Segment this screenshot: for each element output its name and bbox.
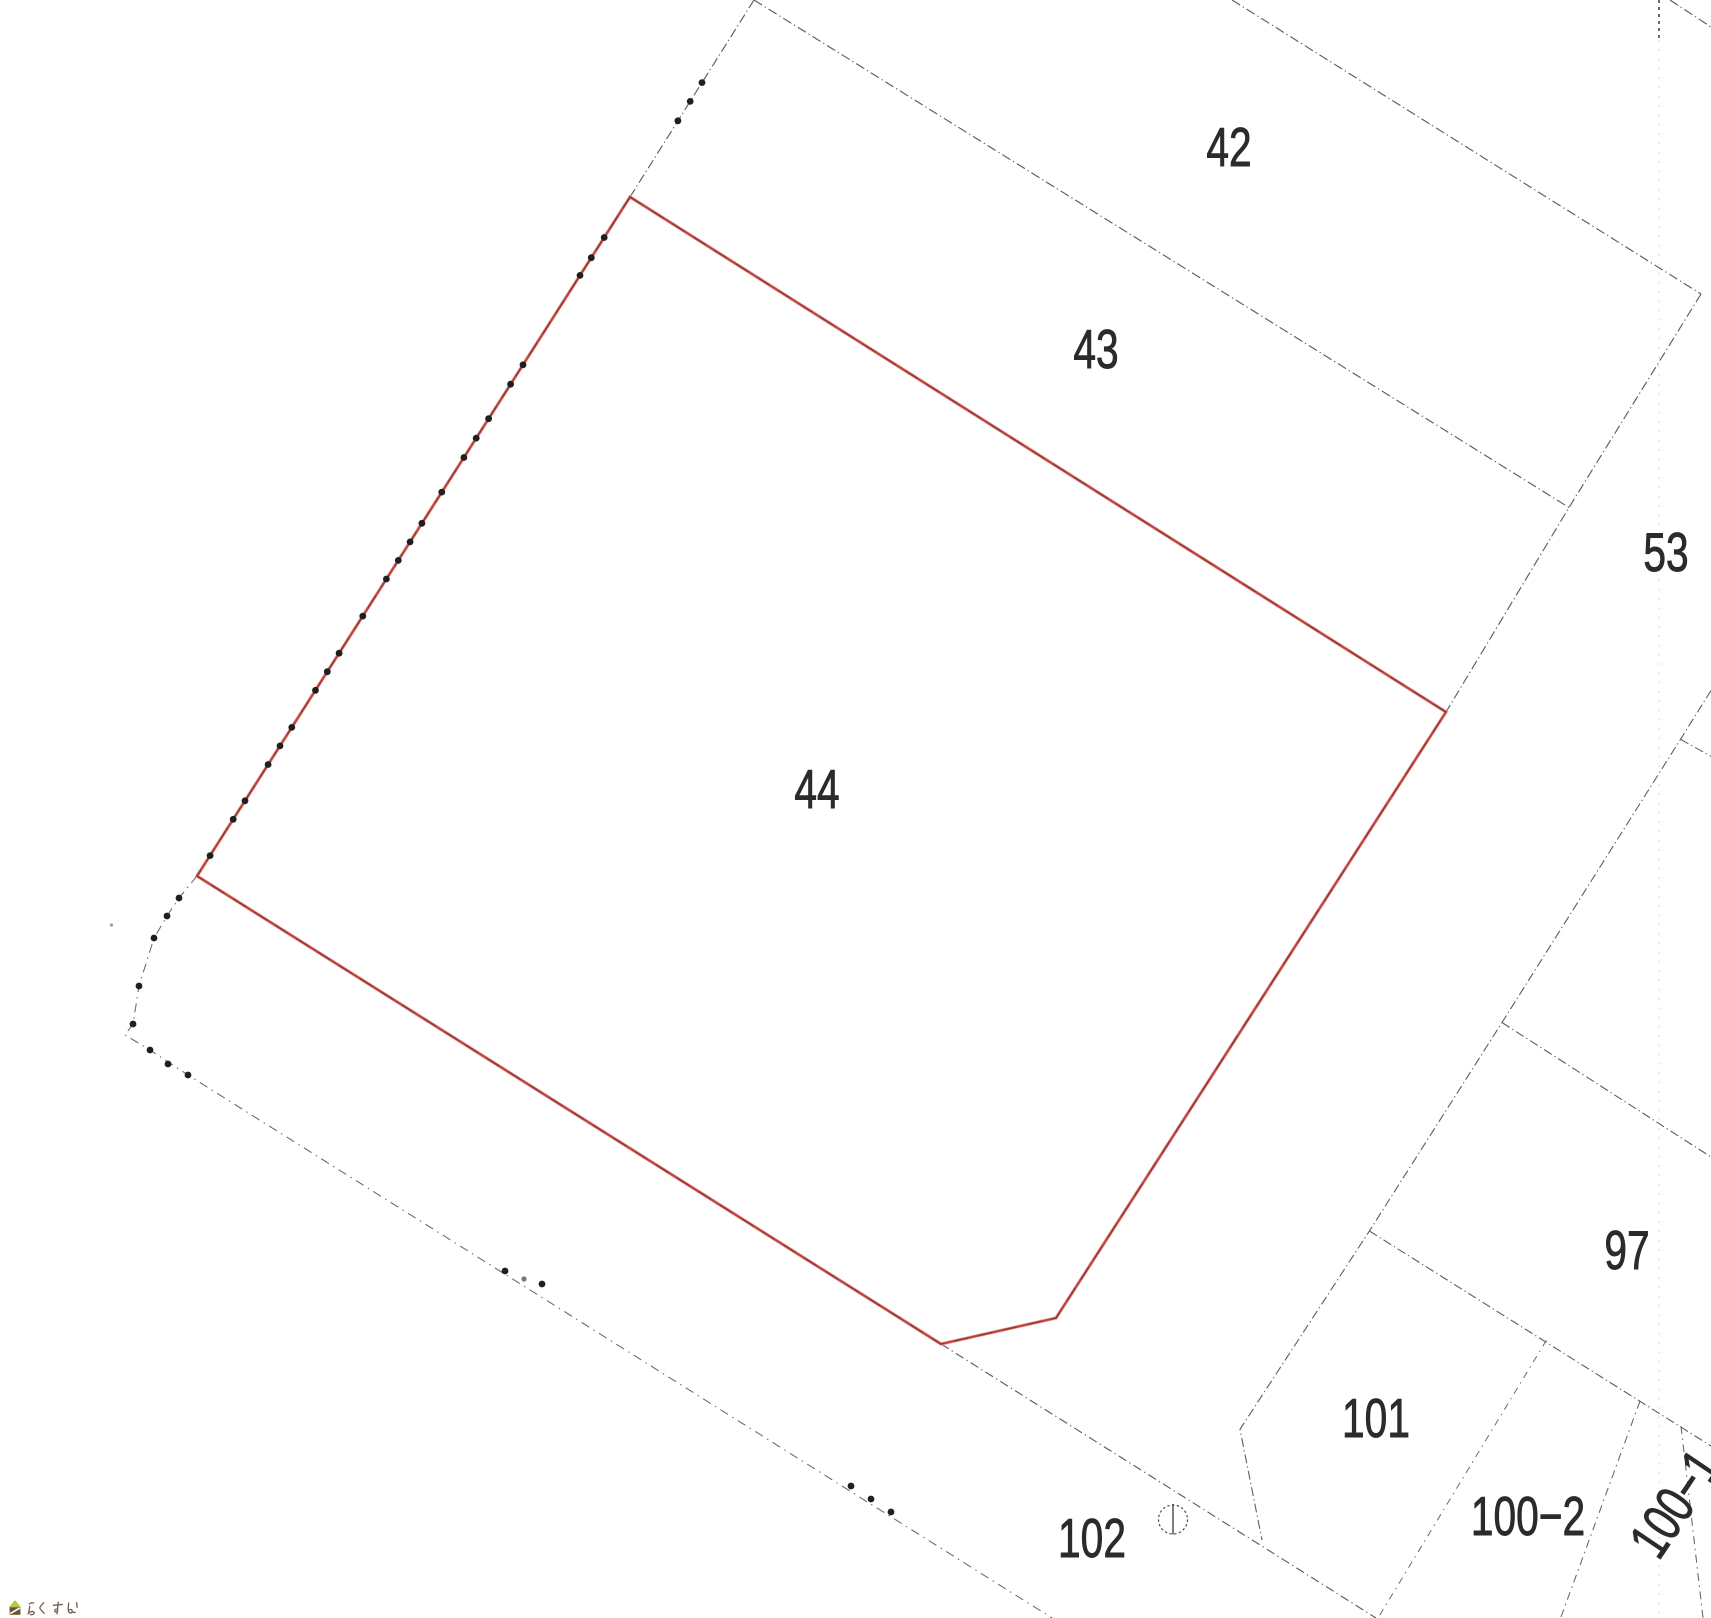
svg-text:102: 102 bbox=[1058, 1508, 1126, 1569]
svg-text:43: 43 bbox=[1073, 319, 1118, 380]
svg-text:101: 101 bbox=[1342, 1388, 1410, 1449]
svg-text:44: 44 bbox=[794, 759, 839, 820]
svg-text:42: 42 bbox=[1206, 117, 1251, 178]
svg-text:97: 97 bbox=[1604, 1220, 1649, 1281]
svg-text:53: 53 bbox=[1643, 522, 1688, 583]
svg-text:100−2: 100−2 bbox=[1471, 1486, 1585, 1547]
